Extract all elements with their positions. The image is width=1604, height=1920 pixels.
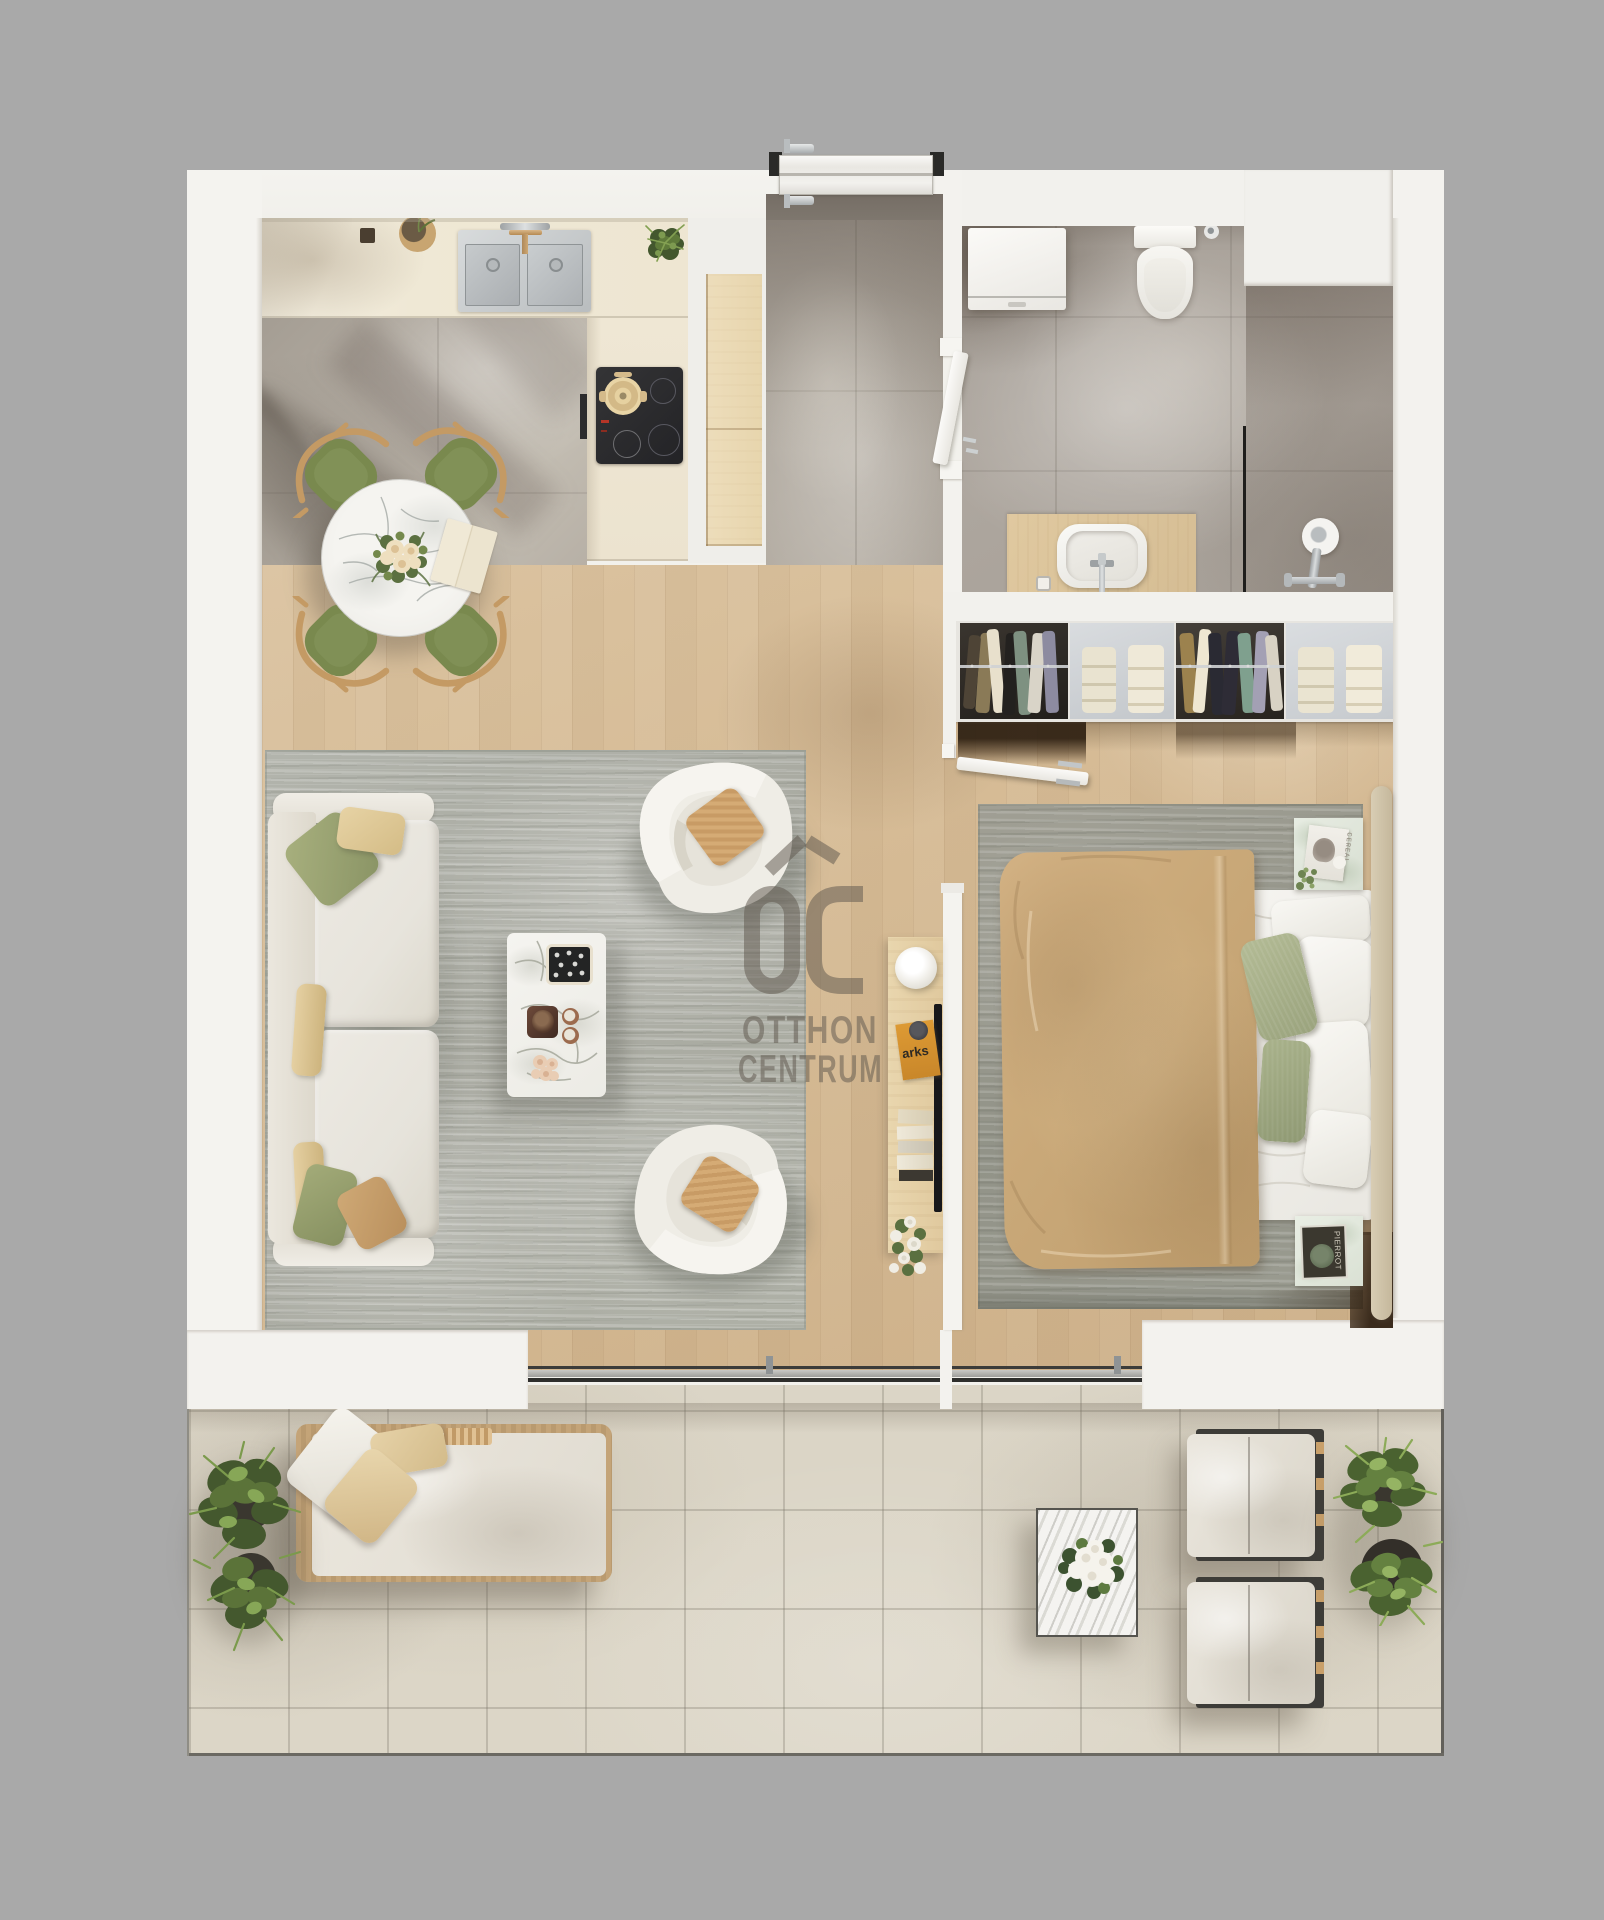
- svg-text:CENTRUM: CENTRUM: [738, 1048, 883, 1091]
- svg-text:OTTHON: OTTHON: [742, 1009, 878, 1052]
